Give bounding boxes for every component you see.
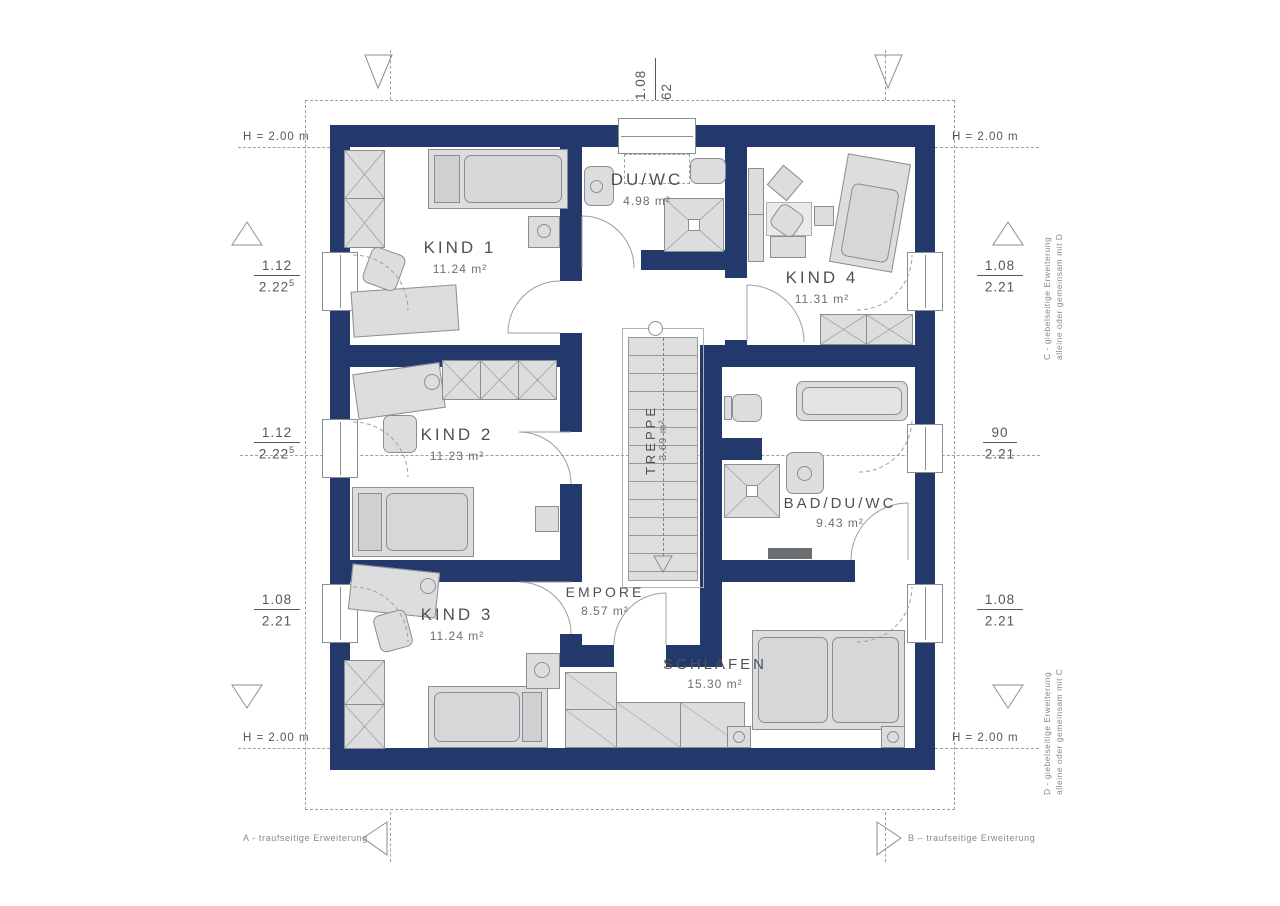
room-name: KIND 4: [762, 268, 882, 288]
dimension-value: 2.225: [243, 276, 311, 295]
room-name: BAD/DU/WC: [765, 495, 915, 512]
dimension-left-3: 1.08 2.21: [243, 592, 311, 629]
dimension-value: 2.21: [966, 276, 1034, 295]
dimension-value: 1.12: [254, 258, 300, 276]
room-area: 8.57 m²: [550, 604, 660, 618]
room-area: 11.24 m²: [402, 629, 512, 643]
marker-triangle: [232, 222, 262, 245]
plan-annotations-overlay: [0, 0, 1280, 906]
dimension-right-1: 1.08 2.21: [966, 258, 1034, 295]
dimension-right-2: 90 2.21: [966, 425, 1034, 462]
room-label-duwc: DU/WC 4.98 m²: [592, 170, 702, 208]
marker-triangle: [365, 55, 392, 88]
room-label-kind3: KIND 3 11.24 m²: [402, 605, 512, 643]
room-area: 9.43 m²: [765, 516, 915, 530]
dimension-top-b: 62: [659, 62, 674, 100]
dimension-right-3: 1.08 2.21: [966, 592, 1034, 629]
dimension-left-2: 1.12 2.225: [243, 425, 311, 462]
room-area: 11.31 m²: [762, 292, 882, 306]
room-label-kind4: KIND 4 11.31 m²: [762, 268, 882, 306]
dimension-value: 1.08: [977, 258, 1023, 276]
room-area: 11.24 m²: [395, 262, 525, 276]
note-extension-c-line2: alleine oder gemeinsam mit D: [1054, 165, 1064, 360]
dimension-value: 1.08: [254, 592, 300, 610]
room-label-kind1: KIND 1 11.24 m²: [395, 238, 525, 276]
window-swing-dashed: [353, 587, 408, 642]
floor-plan: TREPPE 3.69 m²: [0, 0, 1280, 906]
height-label-bottom-right: H = 2.00 m: [952, 732, 1019, 744]
window-swing-dashed: [857, 587, 912, 642]
marker-triangle: [877, 822, 901, 855]
height-label-top-right: H = 2.00 m: [952, 131, 1019, 143]
stair-arrow: [654, 556, 672, 572]
window-swing-dashed: [353, 422, 408, 477]
room-label-bad: BAD/DU/WC 9.43 m²: [765, 495, 915, 530]
room-area: 11.23 m²: [402, 449, 512, 463]
dimension-left-1: 1.12 2.225: [243, 258, 311, 295]
door-swing: [508, 281, 560, 333]
room-area: 4.98 m²: [592, 194, 702, 208]
note-extension-d-line2: alleine oder gemeinsam mit C: [1054, 600, 1064, 795]
dimension-value: 1.12: [254, 425, 300, 443]
door-swing: [582, 216, 634, 268]
room-name: KIND 3: [402, 605, 512, 625]
room-label-schlafen: SCHLAFEN 15.30 m²: [645, 656, 785, 691]
room-label-empore: EMPORE 8.57 m²: [550, 584, 660, 618]
dimension-value: 90: [983, 425, 1016, 443]
height-label-top-left: H = 2.00 m: [243, 131, 310, 143]
dimension-value: 2.21: [966, 443, 1034, 462]
note-extension-c-line1: C - giebelseitige Erweiterung: [1042, 165, 1052, 360]
room-name: EMPORE: [550, 584, 660, 600]
note-extension-d-line1: D - giebelseitige Erweiterung: [1042, 600, 1052, 795]
dimension-value: 2.225: [243, 443, 311, 462]
height-label-bottom-left: H = 2.00 m: [243, 732, 310, 744]
window-swing-dashed: [859, 419, 912, 472]
marker-triangle: [232, 685, 262, 708]
dimension-value: 1.08: [977, 592, 1023, 610]
dimension-value: 2.21: [243, 610, 311, 629]
marker-triangle: [875, 55, 902, 88]
room-name: SCHLAFEN: [645, 656, 785, 673]
door-swing: [519, 432, 571, 484]
dimension-top-a: 1.08: [633, 56, 648, 100]
room-area: 15.30 m²: [645, 677, 785, 691]
room-name: KIND 2: [402, 425, 512, 445]
room-name: DU/WC: [592, 170, 702, 190]
note-extension-b: B – traufseitige Erweiterung: [908, 833, 1035, 843]
room-name: KIND 1: [395, 238, 525, 258]
marker-triangle: [993, 685, 1023, 708]
dimension-value: 2.21: [966, 610, 1034, 629]
room-label-kind2: KIND 2 11.23 m²: [402, 425, 512, 463]
marker-triangle: [993, 222, 1023, 245]
note-extension-a: A - traufseitige Erweiterung: [243, 833, 368, 843]
